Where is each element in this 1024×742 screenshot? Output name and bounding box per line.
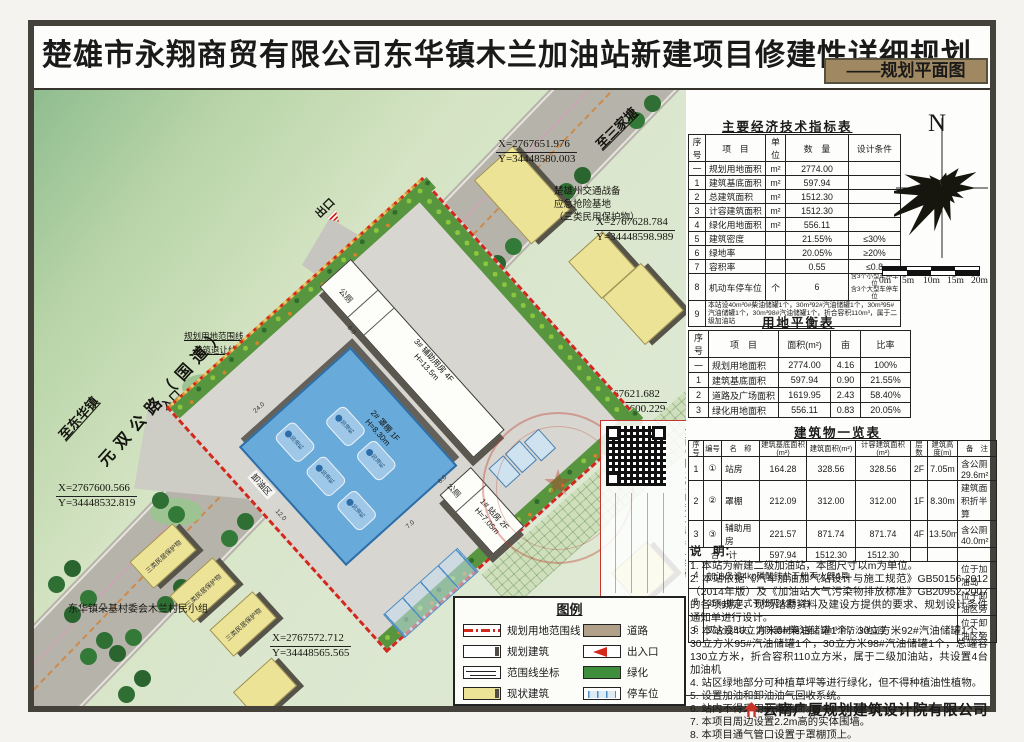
- col-header: 比率: [861, 331, 911, 358]
- legend-label: 道路: [627, 623, 648, 638]
- legend-item: 范围线坐标: [463, 662, 581, 683]
- table-row: 2道路及广场面积1619.952.4358.40%: [689, 388, 911, 403]
- scale-bar: 0m 5m 10m 15m 20m: [882, 266, 990, 288]
- coordinate-x: X=2767651.976: [496, 138, 577, 153]
- scale-tick-label: 5m: [902, 276, 914, 286]
- legend-item: 停车位: [583, 683, 659, 704]
- legend-item: 绿化: [583, 662, 659, 683]
- table-header-row: 序号 项 目 单位 数 量 设计条件: [689, 135, 901, 162]
- table-header-row: 序号 项 目 面积(m²) 亩 比率: [689, 331, 911, 358]
- site-plan-map: 至三家塘 至东华镇 元双公路（国道） 出口 入口 三类民居保护物 三类民居保护物…: [34, 90, 690, 706]
- fuel-dispenser-island: 加油机: [335, 488, 378, 532]
- coordinate-y: Y=34448598.989: [594, 231, 675, 245]
- drawing-sheet: 楚雄市永翔商贸有限公司东华镇木兰加油站新建项目修建性详细规划 ——规划平面图 至…: [28, 20, 996, 712]
- col-header: 序号: [689, 135, 706, 162]
- table-row: 1建筑基底面积597.940.9021.55%: [689, 373, 911, 388]
- title-block-company: 云南广厦规划建筑设计院有限公司: [686, 695, 990, 722]
- cell: 8: [689, 274, 706, 301]
- qr-decor-line: [615, 493, 616, 593]
- cell: 机动车停车位: [706, 274, 766, 301]
- company-logo-icon: [744, 702, 759, 717]
- dispenser-label: 加油机: [287, 434, 304, 452]
- col-header: 数 量: [786, 135, 849, 162]
- curb-fillet: [150, 498, 202, 526]
- fuel-dispenser-island: 加油机: [304, 454, 347, 498]
- building-table-title: 建筑物一览表: [794, 422, 881, 441]
- coordinate-y: Y=34448532.819: [56, 497, 137, 511]
- north-label: N: [928, 110, 946, 138]
- col-header: 建筑高度(m): [928, 441, 958, 457]
- table-row-parking: 8 机动车停车位 个 6 含3个小型车停车位 含3个大型车停车位: [689, 274, 901, 301]
- legend-item: 规划用地范围线: [463, 620, 581, 641]
- qr-finder: [652, 426, 666, 440]
- coordinate-callout: X=2767600.566 Y=34448532.819: [56, 482, 137, 511]
- table-row: 5建筑密度21.55%≤30%: [689, 232, 901, 246]
- coordinate-x: X=2767628.784: [594, 216, 675, 231]
- boundary-line-symbol: [463, 624, 501, 637]
- table-row: 7容积率0.55≤0.8: [689, 260, 901, 274]
- existing-building: [233, 657, 297, 706]
- toilet-label: 公厕: [336, 287, 354, 306]
- dimension-label: 12.0: [274, 508, 288, 522]
- qr-decor-line: [647, 493, 648, 593]
- parking-symbol: [583, 687, 621, 700]
- legend-label: 规划用地范围线: [507, 623, 581, 638]
- table-row: 3③辅助用房221.57871.74871.744F13.50m含公厕40.0m…: [689, 521, 997, 548]
- dispenser-label: 加油机: [318, 468, 335, 486]
- boundary-line-label: 规划用地范围线: [184, 330, 244, 342]
- dispenser-label: 加油机: [369, 453, 386, 471]
- indicators-table-title: 主要经济技术指标表: [722, 116, 853, 135]
- scale-tick-label: 15m: [947, 276, 964, 286]
- village-label: 东华镇朵基村委会木兰村民小组: [68, 600, 208, 615]
- col-header: 亩: [831, 331, 861, 358]
- data-panel: 主要经济技术指标表 序号 项 目 单位 数 量 设计条件 一规划用地面积m²27…: [686, 90, 990, 706]
- col-header: 计容建筑面积(m²): [856, 441, 911, 457]
- qr-code: [606, 426, 666, 486]
- parking-cond-2: 含3个大型车停车位: [850, 287, 899, 300]
- note-item: 3. 本站设40立方米0#柴油储罐1个，30立方米92#汽油储罐1个，30立方米…: [690, 625, 988, 677]
- table-row: 2②罩棚212.09312.00312.001F8.30m建筑面积折半算: [689, 481, 997, 521]
- legend-item: 道路: [583, 620, 659, 641]
- col-header: 层数: [911, 441, 928, 457]
- compass: N: [894, 114, 990, 264]
- legend-item: 现状建筑: [463, 683, 581, 704]
- col-header: 面积(m²): [779, 331, 831, 358]
- note-item: 1. 本站为新建二级加油站，本图尺寸以m为单位。: [690, 560, 988, 573]
- legend-item: 规划建筑: [463, 641, 581, 662]
- scale-tick-label: 0m: [879, 276, 891, 286]
- fuel-dispenser-island: 加油机: [273, 420, 316, 464]
- dimension-label: 24.0: [252, 401, 266, 415]
- legend-label: 规划建筑: [507, 644, 549, 659]
- fuel-dispenser-island: 加油机: [324, 404, 367, 448]
- exit-marker: 出口: [311, 194, 346, 229]
- qr-finder: [606, 426, 620, 440]
- legend-box: 图例 规划用地范围线 规划建筑 范围线坐标 现状建筑 道路 出入口 绿化 停车位: [453, 596, 686, 706]
- land-balance-table: 序号 项 目 面积(m²) 亩 比率 一规划用地面积2774.004.16100…: [688, 330, 911, 418]
- note-item: 2. 本站依据《汽车加油加气站设计与施工规范》GB50156-2012（2014…: [690, 573, 988, 625]
- cell: 9: [689, 301, 706, 327]
- col-header: 设计条件: [849, 135, 901, 162]
- greening-symbol: [583, 666, 621, 679]
- col-header: 项 目: [706, 135, 766, 162]
- drawing-subtitle: ——规划平面图: [824, 58, 988, 84]
- table-row: 1建筑基底面积m²597.94: [689, 176, 901, 190]
- notes-title: 说 明：: [690, 546, 988, 559]
- base-facility-line1: 楚雄州交通战备: [554, 186, 640, 199]
- qr-finder: [606, 472, 620, 486]
- col-header: 序号: [689, 331, 709, 358]
- land-table-title: 用地平衡表: [762, 312, 835, 331]
- company-name: 云南广厦规划建筑设计院有限公司: [763, 699, 988, 720]
- legend-title: 图例: [455, 599, 684, 618]
- table-row: 一规划用地面积m²2774.00: [689, 162, 901, 176]
- col-header: 备 注: [958, 441, 997, 457]
- planned-building-symbol: [463, 645, 501, 658]
- coordinate-y: Y=34448565.565: [270, 647, 351, 661]
- dispenser-label: 加油机: [338, 419, 355, 437]
- qr-decor-line: [663, 493, 664, 593]
- scale-tick-label: 20m: [971, 276, 988, 286]
- note-item: 4. 站区绿地部分可种植草坪等进行绿化，但不得种植油性植物。: [690, 677, 988, 690]
- coordinate-x: X=2767600.566: [56, 482, 137, 497]
- col-header: 单位: [766, 135, 786, 162]
- qr-decor-line: [631, 493, 632, 593]
- legend-label: 出入口: [627, 644, 659, 659]
- existing-building-symbol: [463, 687, 501, 700]
- coordinate-symbol: [463, 666, 501, 679]
- indicators-table: 序号 项 目 单位 数 量 设计条件 一规划用地面积m²2774.00 1建筑基…: [688, 134, 901, 327]
- legend-label: 停车位: [627, 686, 659, 701]
- gate-symbol: [583, 645, 621, 658]
- roadside-trees-decoration: [34, 90, 51, 107]
- col-header: 序号: [689, 441, 704, 457]
- col-header: 建筑面积(m²): [807, 441, 856, 457]
- table-row: 一规划用地面积2774.004.16100%: [689, 358, 911, 373]
- cell: 6: [786, 274, 849, 301]
- col-header: 编号: [704, 441, 722, 457]
- green-strip: [170, 177, 436, 418]
- base-facility-line2: 应急抢险基地: [554, 199, 640, 212]
- legend-item: 出入口: [583, 641, 659, 662]
- road-symbol: [583, 624, 621, 637]
- legend-label: 现状建筑: [507, 686, 549, 701]
- legend-left-column: 规划用地范围线 规划建筑 范围线坐标 现状建筑: [463, 620, 581, 704]
- toilet-label: 公厕: [444, 482, 462, 501]
- table-row: 6绿地率20.05%≥20%: [689, 246, 901, 260]
- protected-building-label: 三类民居保护物: [223, 605, 264, 643]
- scale-tick-label: 10m: [923, 276, 940, 286]
- table-row: 4绿化用地面积m²556.11: [689, 218, 901, 232]
- coordinate-callout: X=2767651.976 Y=34448580.003: [496, 138, 577, 167]
- table-row: 1①站房164.28328.56328.562F7.05m含公厕29.6m²: [689, 457, 997, 481]
- col-header: 建筑基底面积(m²): [760, 441, 807, 457]
- legend-right-column: 道路 出入口 绿化 停车位: [583, 620, 659, 704]
- col-header: 名 称: [722, 441, 760, 457]
- table-row: 3绿化用地面积556.110.8320.05%: [689, 403, 911, 418]
- coordinate-x: X=2767572.712: [270, 632, 351, 647]
- coordinate-callout: X=2767628.784 Y=34448598.989: [594, 216, 675, 245]
- table-header-row: 序号 编号 名 称 建筑基底面积(m²) 建筑面积(m²) 计容建筑面积(m²)…: [689, 441, 997, 457]
- coordinate-y: Y=34448580.003: [496, 153, 577, 167]
- dimension-label: 7.0: [405, 519, 416, 530]
- dispenser-label: 加油机: [349, 503, 366, 521]
- wall-line: [348, 290, 378, 318]
- legend-label: 绿化: [627, 665, 648, 680]
- note-item: 8. 本项目通气管口设置于罩棚顶上。: [690, 729, 988, 742]
- table-row: 3计容建筑面积m²1512.30: [689, 204, 901, 218]
- coordinate-callout: X=2767572.712 Y=34448565.565: [270, 632, 351, 661]
- table-row: 2总建筑面积m²1512.30: [689, 190, 901, 204]
- direction-label-sw: 至东华镇: [54, 392, 103, 443]
- qr-code-block: 云南省国土空间规划成果二维码: [600, 420, 690, 600]
- legend-label: 范围线坐标: [507, 665, 560, 680]
- existing-building-protected: 三类民居保护物: [209, 591, 276, 657]
- wall-line: [364, 308, 394, 336]
- auxiliary-building-label: 3# 辅助用房 4F H=13.5m: [404, 337, 455, 391]
- cell: 个: [766, 274, 786, 301]
- col-header: 项 目: [709, 331, 779, 358]
